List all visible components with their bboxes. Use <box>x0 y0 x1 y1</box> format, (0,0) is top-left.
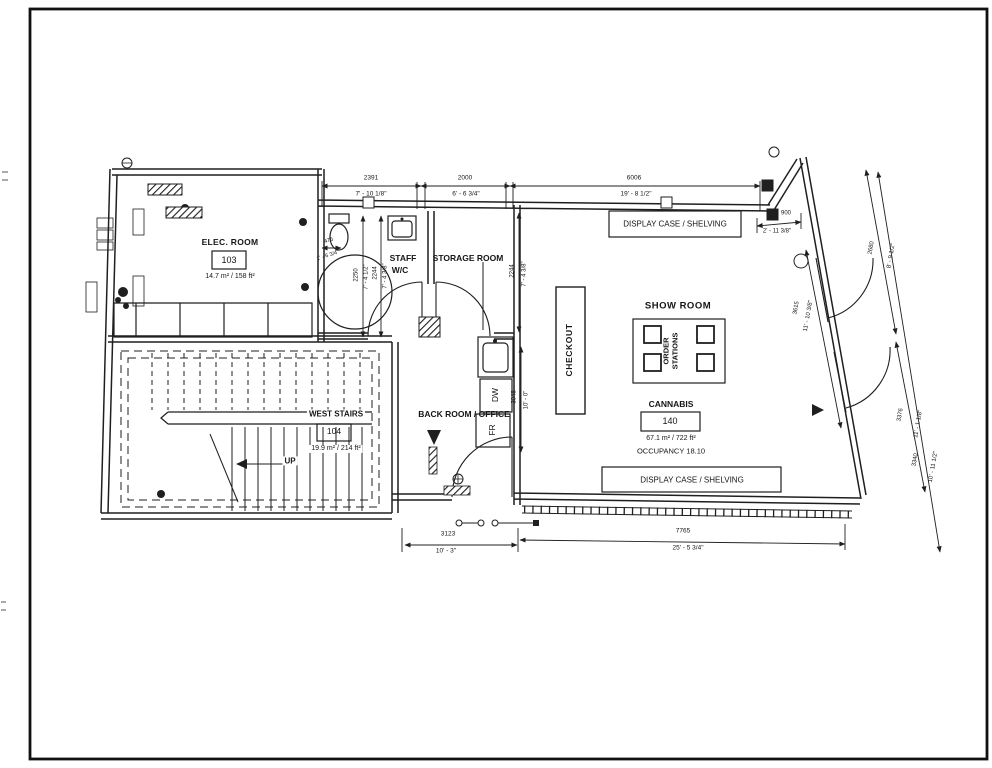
lintel-hatch <box>166 207 202 218</box>
doors <box>368 258 890 497</box>
dim-top-2-ft: 19' - 8 1/2" <box>620 190 651 197</box>
checkout-label: CHECKOUT <box>565 324 575 377</box>
equipment-tag <box>133 209 144 235</box>
dim-interior-2-mm: 2244 <box>373 266 380 279</box>
room-label-staff-wc-1: STAFF <box>390 254 417 264</box>
exterior-fixture <box>97 242 113 250</box>
dim-interior-1-ft: 7' - 4 1/2" <box>364 264 371 289</box>
display-case-bottom-label: DISPLAY CASE / SHELVING <box>640 475 744 484</box>
elec-panels <box>114 303 312 337</box>
drawing-sheet: ELEC. ROOM 103 14.7 m² / 158 ft² WEST ST… <box>0 0 992 768</box>
dim-top-1-ft: 6' - 6 3/4" <box>452 190 479 197</box>
room-number-elec: 103 <box>221 255 236 265</box>
wall-marker-triangle <box>812 404 824 416</box>
entry-marker-triangle <box>427 430 441 445</box>
display-case-top-label: DISPLAY CASE / SHELVING <box>623 219 727 228</box>
room-label-back-room: BACK ROOM / OFFICE <box>418 410 510 420</box>
dim-bottom-1-mm: 7765 <box>676 527 690 534</box>
dim-bottom-1-ft: 25' - 5 3/4" <box>672 544 703 551</box>
order-stations-line2: STATIONS <box>671 333 680 370</box>
room-area-elec: 14.7 m² / 158 ft² <box>205 273 254 281</box>
legend-dot <box>478 520 484 526</box>
hardware-blob <box>118 287 128 297</box>
room-label-elec: ELEC. ROOM <box>202 238 259 248</box>
column-marker-solid <box>762 180 773 191</box>
dim-top-0-mm: 2391 <box>364 174 378 181</box>
walls <box>101 157 866 519</box>
dim-bottom-0-mm: 3123 <box>441 530 455 537</box>
junction-box-dot <box>301 283 309 291</box>
room-label-cannabis: CANNABIS <box>649 400 694 410</box>
column-marker-solid <box>767 209 778 220</box>
door-jamb-hatch <box>419 317 440 337</box>
fridge-label: FR <box>488 424 498 435</box>
up-arrow-head <box>236 459 247 469</box>
room-label-staff-wc-2: W/C <box>392 266 409 276</box>
floorplan-linework <box>0 0 992 768</box>
column-marker <box>661 197 672 208</box>
dim-bottom-0-ft: 10' - 3" <box>436 547 456 554</box>
margin-marks <box>1 172 8 610</box>
exterior-fixture <box>97 218 113 228</box>
room-label-show-room: SHOW ROOM <box>645 302 711 313</box>
dim-top-1-mm: 2000 <box>458 174 472 181</box>
striped-post <box>429 447 437 474</box>
dim-top-0-ft: 7' - 10 1/8" <box>355 190 386 197</box>
room-label-storage: STORAGE ROOM <box>433 254 504 264</box>
toilet-tank <box>329 214 349 223</box>
stairs-up-label: UP <box>282 456 297 465</box>
equipment-tag <box>86 282 97 312</box>
room-label-west-stairs: WEST STAIRS <box>307 409 365 418</box>
sheet-border <box>30 9 987 759</box>
storefront-glazing <box>522 506 852 518</box>
room-area-west-stairs: 19.9 m² / 214 ft² <box>309 445 362 453</box>
exterior-fixture <box>97 230 113 240</box>
dishwasher-label: DW <box>491 388 501 402</box>
order-station-seat <box>644 326 661 343</box>
order-station-seat <box>697 326 714 343</box>
dim-interior-3-ft: 7' - 4 3/8" <box>522 261 529 286</box>
order-station-seat <box>697 354 714 371</box>
order-stations-label: ORDER STATIONS <box>662 333 679 370</box>
dim-interior-4-mm: 3048 <box>512 390 519 403</box>
dim-interior-1-mm: 2250 <box>354 268 361 281</box>
dim-interior-4-ft: 10' - 0" <box>524 391 531 410</box>
legend-dot <box>492 520 498 526</box>
note-symbol <box>769 147 779 157</box>
equipment-tag <box>133 276 144 306</box>
dim-interior-2-ft: 7' - 4 3/8" <box>383 263 390 288</box>
junction-box-dot <box>299 218 307 226</box>
room-occupancy-cannabis: OCCUPANCY 18.10 <box>637 448 705 457</box>
room-number-cannabis: 140 <box>662 416 677 426</box>
column-marker <box>363 197 374 208</box>
dim-right-0-ft: 2' - 11 3/8" <box>763 229 791 236</box>
room-number-west-stairs: 104 <box>327 427 341 437</box>
order-station-seat <box>644 354 661 371</box>
lintel-hatch <box>148 184 182 195</box>
dim-top-2-mm: 6006 <box>627 174 641 181</box>
dim-interior-3-mm: 2244 <box>510 264 517 277</box>
legend-dot <box>456 520 462 526</box>
dim-right-0-mm: 900 <box>781 211 791 218</box>
pipe-symbol <box>794 254 808 268</box>
threshold-hatch <box>444 486 470 495</box>
room-area-cannabis: 67.1 m² / 722 ft² <box>646 435 695 443</box>
